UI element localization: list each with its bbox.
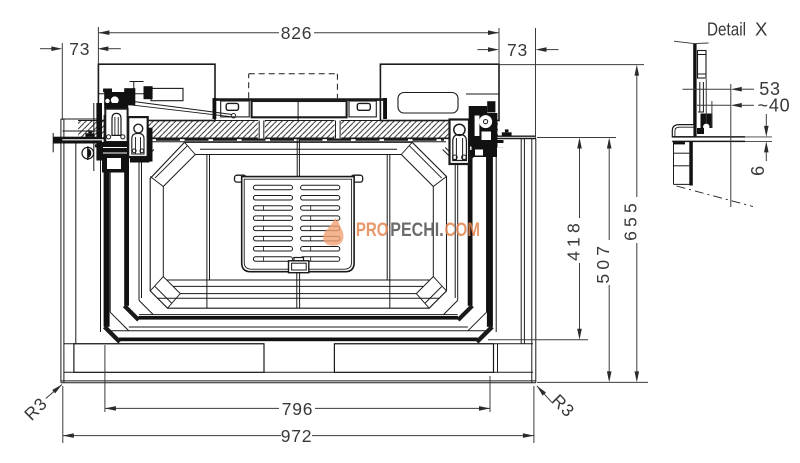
svg-text:X: X [755, 19, 767, 40]
svg-text:796: 796 [282, 399, 314, 419]
svg-text:73: 73 [69, 39, 90, 59]
svg-text:~40: ~40 [758, 96, 791, 116]
svg-text:PECHI.: PECHI. [390, 219, 443, 241]
svg-text:73: 73 [507, 40, 528, 60]
svg-text:PRO: PRO [356, 219, 389, 241]
svg-text:655: 655 [621, 199, 641, 241]
svg-text:Detail: Detail [707, 19, 746, 40]
svg-text:418: 418 [563, 219, 583, 261]
svg-text:972: 972 [281, 426, 313, 446]
svg-text:507: 507 [593, 242, 613, 284]
svg-text:COM: COM [445, 219, 480, 241]
svg-text:826: 826 [281, 23, 313, 43]
svg-text:6: 6 [748, 165, 768, 176]
